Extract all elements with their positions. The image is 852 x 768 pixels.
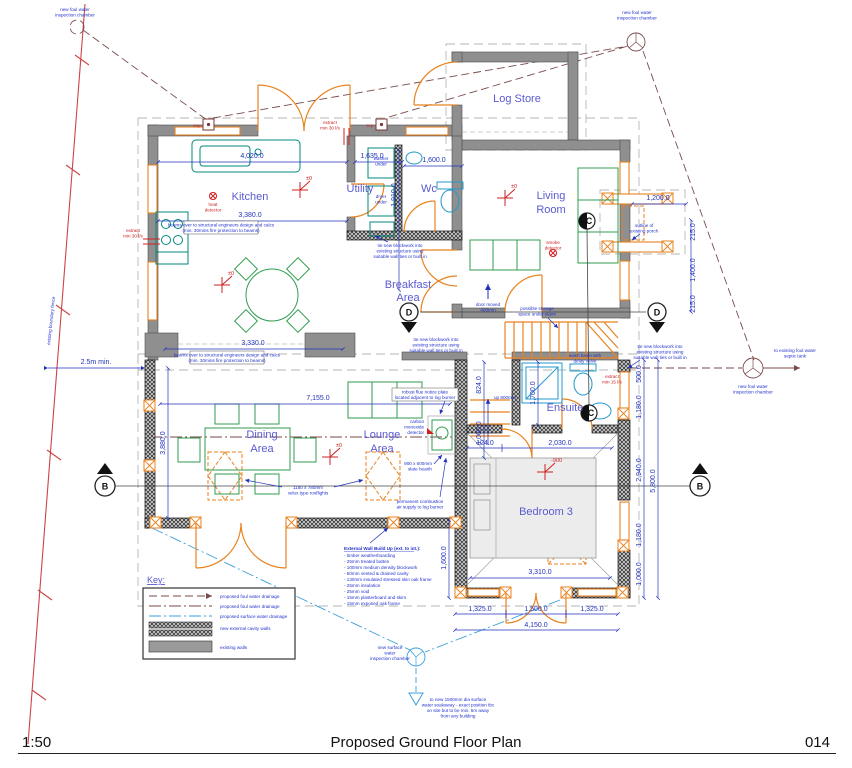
- storage-note-1: possible storage: [520, 306, 554, 311]
- blockwork-note-2b: existing structure using: [413, 343, 460, 348]
- basin-note-1: wash basin with: [569, 353, 602, 358]
- window-kitchen-west-1: [148, 165, 157, 213]
- dim-hall-a: 824.0: [476, 376, 483, 394]
- key-title: Key:: [147, 575, 165, 585]
- washer-label-2: under: [375, 162, 387, 167]
- velux-rooflight-lounge: [366, 452, 400, 500]
- foul-chamber-note-right-2: inspection chamber: [733, 390, 773, 395]
- room-label-bedroom3: Bedroom 3: [519, 506, 573, 518]
- svp-label-1: svp: [193, 123, 201, 128]
- section-letter-c-top: C: [586, 216, 593, 226]
- key-item-4: existing walls: [220, 645, 248, 650]
- co-detector-2: monoxide: [404, 425, 424, 430]
- dim-extension-width: 7,155.0: [306, 395, 329, 402]
- section-marker-c-top: C: [579, 213, 595, 229]
- wall-buildup-line-5: - 25mm insulation: [344, 583, 381, 588]
- plan-drawing: existing boundary fence new foul water i…: [0, 0, 852, 768]
- heat-detector-label-2: detector: [205, 208, 222, 213]
- room-label-lounge-2: Area: [370, 443, 394, 455]
- boundary-fence: existing boundary fence: [28, 4, 89, 744]
- log-burner: [428, 416, 456, 454]
- section-letter-b-left: B: [102, 482, 109, 492]
- section-marker-d-right: D: [648, 303, 666, 333]
- blockwork-note-1a: tie new blockwork into: [378, 243, 423, 248]
- wall-buildup-line-8: - 15mm exposed oak frame: [344, 601, 400, 606]
- window-bedroom-east-2: [620, 502, 629, 540]
- drawing-number: 014: [805, 734, 830, 751]
- room-label-utility: Utility: [347, 183, 374, 195]
- title-bar: 1:50 Proposed Ground Floor Plan 014: [0, 730, 852, 760]
- title-rule: [18, 753, 836, 754]
- septic-tank-note-1: to existing foul water: [774, 348, 816, 353]
- dim-bed-bottom-a: 1,325.0: [468, 606, 491, 613]
- wall-buildup-line-4: - 130mm insulated stressed skin oak fram…: [344, 577, 432, 582]
- dim-wc-height: 1,910.0: [391, 183, 398, 206]
- extract30-utility-2: min 30 l/s: [320, 126, 340, 131]
- foul-chamber-note-tl-1: new foul water: [60, 7, 90, 12]
- key-item-0: proposed foul water drainage: [220, 594, 280, 599]
- door-moved-1: door moved: [476, 302, 501, 307]
- dryer-label-1: dryer: [376, 194, 387, 199]
- wall-buildup-line-3: - 50mm vented & drained cavity: [344, 571, 409, 576]
- room-label-log-store: Log Store: [493, 93, 541, 105]
- dim-top-kitchen: 4,020.0: [240, 153, 263, 160]
- soakaway-note-2: water soakaway - exact position tbc: [422, 703, 495, 708]
- section-marker-b-left: B: [95, 463, 115, 496]
- window-bedroom-east-1: [620, 372, 629, 408]
- section-marker-c-bottom: C: [581, 405, 597, 421]
- room-label-wc: Wc: [421, 183, 437, 195]
- wall-buildup-line-6: - 25mm void: [344, 589, 370, 594]
- blockwork-note-3c: suitable wall ties or built in: [633, 355, 687, 360]
- co-detector-icon: [427, 428, 434, 434]
- boundary-fence-label: existing boundary fence: [46, 296, 56, 345]
- living-room-sofas: [470, 168, 618, 270]
- section-letter-c-bottom: C: [588, 408, 595, 418]
- surface-chamber-note-1: new surface: [378, 645, 403, 650]
- dim-right-c: 2,940.0: [636, 458, 643, 481]
- smoke-detector-label-1: smoke: [546, 240, 560, 245]
- key-item-3: new external cavity walls: [220, 626, 271, 631]
- foul-chamber-note-top-1: new foul water: [622, 10, 652, 15]
- dryer-label-2: under: [375, 200, 387, 205]
- surface-chamber-note-3: inspection chamber: [370, 656, 410, 661]
- dim-bed-bottom-total: 4,150.0: [524, 622, 547, 629]
- dim-bed-bottom-b: 1,500.0: [524, 606, 547, 613]
- wall-buildup-line-2: - 100mm medium density blockwork: [344, 565, 418, 570]
- foul-chamber-note-tl-2: inspection chamber: [55, 13, 95, 18]
- wall-buildup-note: External Wall Build Up (ext. to int.): -…: [344, 528, 432, 606]
- basin-note-2: delay valve: [574, 359, 597, 364]
- dim-bed-top-b: 2,030.0: [548, 440, 571, 447]
- flue-plate-1: robust flue notice plate: [402, 390, 449, 395]
- dim-bed-left: 1,600.0: [441, 546, 448, 569]
- dim-porch-side-b: 215.0: [690, 295, 697, 313]
- level-zero-kitchen-2: ±0: [228, 271, 234, 277]
- septic-tank-note-2: septic tank: [784, 354, 807, 359]
- blockwork-note-3a: tie new blockwork into: [638, 344, 683, 349]
- section-marker-d-left: D: [400, 303, 418, 333]
- key-item-2: proposed surface water drainage: [220, 614, 288, 619]
- section-letter-b-right: B: [697, 482, 704, 492]
- combustion-note-2: air supply to log burner: [397, 505, 444, 510]
- section-marker-b-right: B: [690, 463, 710, 496]
- room-label-dining-1: Dining: [246, 429, 277, 441]
- extract15-ensuite-1: extract: [605, 374, 620, 379]
- drawing-title: Proposed Ground Floor Plan: [0, 734, 852, 751]
- svp-label-2: svp: [366, 123, 374, 128]
- doors-extension-south: [196, 523, 286, 568]
- beams-note-1b: (min. 30mins fire protection to beams): [182, 228, 260, 233]
- dim-right-a: 500.0: [636, 365, 643, 383]
- room-label-living-1: Living: [537, 190, 566, 202]
- hearth-note-1: 900 x 600mm: [404, 461, 432, 466]
- dim-right-b: 1,180.0: [636, 395, 643, 418]
- wall-buildup-title: External Wall Build Up (ext. to int.):: [344, 546, 421, 551]
- room-label-dining-2: Area: [250, 443, 274, 455]
- velux-note-1: 1180 x 780mm: [293, 485, 323, 490]
- up-800-note: up 800mm: [494, 395, 516, 400]
- dim-bed-width: 3,310.0: [528, 569, 551, 576]
- wall-buildup-line-1: - 25mm treated batten: [344, 559, 390, 564]
- window-bedroom-south-1: [468, 589, 499, 596]
- foul-chamber-note-top-2: inspection chamber: [617, 16, 657, 21]
- co-detector-1: carbon: [410, 419, 424, 424]
- dim-kitchen-width: 3,380.0: [238, 212, 261, 219]
- room-label-ensuite: Ensuite: [547, 402, 584, 414]
- extract30-kitchen-2: min 30 l/s: [123, 234, 143, 239]
- foul-inspection-chamber-top-left: [70, 20, 84, 34]
- dim-porch-depth: 1,400.0: [690, 258, 697, 281]
- door-wc: [404, 201, 435, 232]
- smoke-detector-label-2: detector: [545, 246, 562, 251]
- porch-note-1: outline of: [635, 223, 654, 228]
- wall-buildup-line-0: - timber weatherboarding: [344, 553, 396, 558]
- extract30-kitchen-1: extract: [126, 228, 141, 233]
- key-item-1: proposed foul water drainage: [220, 604, 280, 609]
- level-zero-lounge: ±0: [336, 443, 342, 449]
- dim-kitchen-south: 3,330.0: [241, 340, 264, 347]
- extract15-ensuite-2: min 15 l/s: [602, 380, 622, 385]
- dim-right-d: 1,180.0: [636, 523, 643, 546]
- dim-bed-bottom-c: 1,325.0: [580, 606, 603, 613]
- door-moved-2: 400mm: [480, 308, 495, 313]
- co-detector-3: detector: [407, 430, 424, 435]
- kitchen-hob: [156, 212, 188, 264]
- dim-porch-width: 1,200.0: [646, 195, 669, 202]
- room-label-breakfast-1: Breakfast: [385, 279, 431, 291]
- door-bedroom: [502, 429, 532, 459]
- window-kitchen-west-2: [148, 262, 157, 320]
- level-zero-living: ±0: [511, 184, 517, 190]
- dim-boundary-gap: 2.5m min.: [81, 359, 112, 366]
- level-zero-kitchen-1: ±0: [306, 176, 312, 182]
- beams-note-1a: beams over to structural engineers desig…: [168, 223, 275, 228]
- room-label-lounge-1: Lounge: [364, 429, 401, 441]
- dim-extension-left: 3,880.0: [160, 431, 167, 454]
- dim-bed-top-a: 124.0: [476, 440, 494, 447]
- blockwork-note-3b: existing structure using: [637, 350, 684, 355]
- room-label-breakfast-2: Area: [396, 292, 420, 304]
- extract30-utility-1: extract: [323, 120, 338, 125]
- window-living-east-2: [620, 261, 629, 300]
- kitchen-table: [235, 258, 310, 333]
- beams-note-2a: beams over to structural engineers desig…: [174, 353, 281, 358]
- dim-right-e: 1,000.0: [636, 562, 643, 585]
- dim-right-total: 5,800.0: [650, 469, 657, 492]
- soakaway-note-4: from any building: [441, 714, 476, 719]
- velux-rooflight-dining: [208, 452, 242, 500]
- dim-top-wc: 1,600.0: [422, 157, 445, 164]
- dim-porch-side-a: 215.0: [690, 223, 697, 241]
- heat-detector-label-1: heat: [209, 202, 219, 207]
- soakaway-note-1: to new 1500mm dia surface: [430, 697, 487, 702]
- washer-label-1: washer: [374, 156, 389, 161]
- blockwork-note-2c: suitable wall ties or built in: [409, 348, 463, 353]
- soakaway-note-3: on site but to be min. 5m away: [427, 708, 490, 713]
- section-letter-d-left: D: [406, 308, 413, 318]
- foul-chamber-note-right-1: new foul water: [738, 384, 768, 389]
- blockwork-note-2a: tie new blockwork into: [414, 337, 459, 342]
- porch-note-2: existing porch: [630, 229, 659, 234]
- combustion-note-1: permanent combustion: [397, 499, 444, 504]
- level-minus900-bedroom: -900: [551, 458, 562, 464]
- velux-note-2: velux type rooflights: [288, 491, 329, 496]
- key-legend: Key: proposed foul water drainage propos…: [143, 575, 295, 659]
- dim-ensuite-depth: 1,700.0: [530, 381, 537, 404]
- wall-buildup-line-7: - 15mm plasterboard and skim: [344, 595, 406, 600]
- surface-chamber-note-2: water: [384, 651, 396, 656]
- floor-plan-sheet: existing boundary fence new foul water i…: [0, 0, 852, 768]
- hearth-note-2: slate hearth: [408, 467, 432, 472]
- storage-note-2: space under stairs: [518, 312, 556, 317]
- room-label-kitchen: Kitchen: [232, 191, 269, 203]
- blockwork-note-1b: existing structure using: [377, 249, 424, 254]
- window-bedroom-south-2: [578, 589, 616, 596]
- room-label-living-2: Room: [536, 204, 565, 216]
- section-letter-d-right: D: [654, 308, 661, 318]
- flue-plate-2: located adjacent to log burner: [395, 395, 456, 400]
- beams-note-2b: (min. 30mins fire protection to beams): [188, 358, 266, 363]
- window-wc-north: [406, 127, 448, 135]
- blockwork-note-1c: suitable wall ties or built in: [373, 254, 427, 259]
